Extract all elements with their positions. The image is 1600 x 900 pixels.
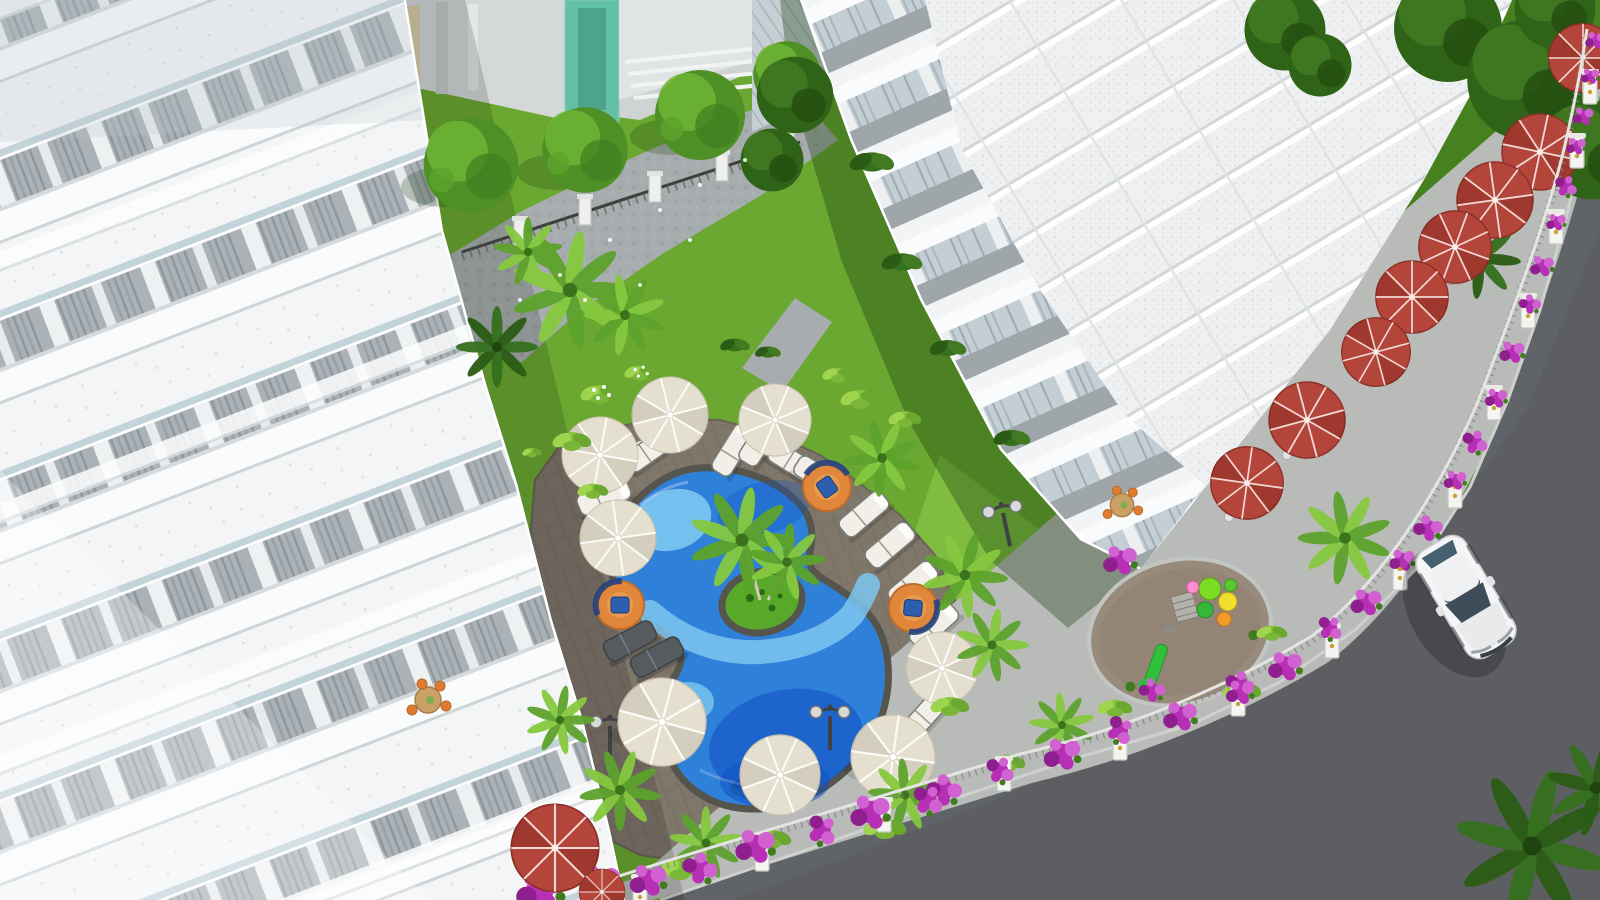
palm-tree: [456, 306, 538, 388]
round-tree: [542, 107, 628, 193]
stone-gate-post: [577, 194, 593, 225]
glass-balcony-tint: [0, 0, 425, 142]
round-tree: [655, 70, 745, 160]
aerial-render-stage: [0, 0, 1600, 900]
stone-gate-post: [647, 171, 663, 202]
hedge: [757, 57, 834, 134]
round-tree: [424, 118, 519, 213]
hedge: [1289, 34, 1352, 97]
door-inner-panel: [578, 8, 606, 110]
residential-complex-render: [0, 0, 1600, 900]
hedge: [741, 129, 804, 192]
